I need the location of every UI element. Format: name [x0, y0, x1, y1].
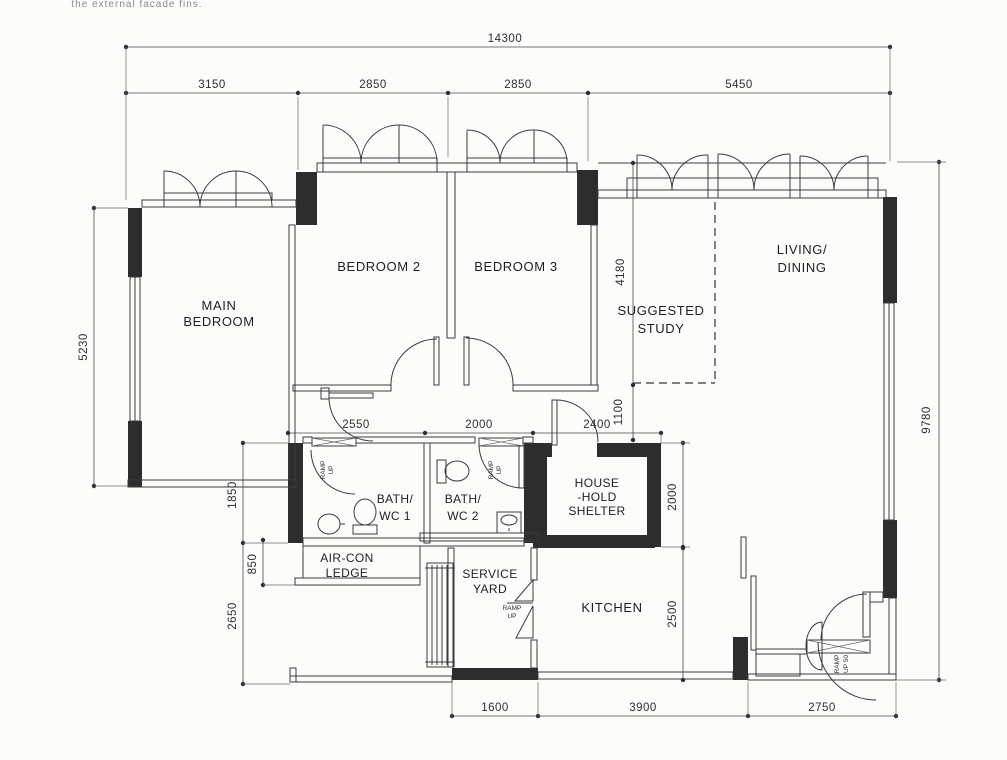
- dim-kitchen-depth: 2500: [667, 600, 679, 628]
- label-service-yard-2: YARD: [473, 582, 507, 596]
- ramp-bath1-1: RAMP: [320, 461, 327, 480]
- ramp-entrance-2: UP 50: [843, 655, 850, 673]
- dim-bottom-seg-1: 1600: [481, 702, 509, 714]
- dim-top-seg-1: 3150: [198, 79, 226, 91]
- label-bedroom3: BEDROOM 3: [474, 259, 557, 274]
- floor-plan-page: the external facade fins.: [0, 0, 1007, 760]
- window-arcs: [164, 125, 868, 207]
- label-living-2: DINING: [777, 260, 826, 275]
- dim-right-height: 9780: [921, 406, 933, 434]
- label-main-bedroom-2: BEDROOM: [183, 314, 254, 329]
- label-study-1: SUGGESTED: [617, 303, 704, 318]
- label-shelter-1: HOUSE: [575, 476, 620, 490]
- label-study-2: STUDY: [637, 321, 684, 336]
- ramp-bath2-2: UP: [496, 465, 503, 474]
- dim-top-seg-2: 2850: [359, 79, 387, 91]
- dim-bath-depth: 1850: [227, 481, 239, 509]
- dim-lower-left-depth: 2650: [227, 602, 239, 630]
- dim-study-gap: 1100: [613, 399, 625, 426]
- label-bath1-2: WC 1: [379, 509, 411, 523]
- ramp-service-yard-2: UP: [507, 613, 516, 620]
- label-bath2-2: WC 2: [447, 509, 479, 523]
- aircon-grille: [425, 563, 455, 667]
- dim-top-seg-3: 2850: [504, 79, 532, 91]
- note-text: the external facade fins.: [71, 0, 202, 10]
- dim-shelter-width: 2400: [583, 419, 611, 431]
- label-ledge-2: LEDGE: [326, 566, 369, 580]
- dim-ledge-depth: 850: [247, 554, 259, 575]
- dim-overall-width: 14300: [488, 33, 522, 45]
- label-shelter-3: SHELTER: [568, 504, 625, 518]
- label-kitchen: KITCHEN: [581, 600, 642, 615]
- dimension-lines: [92, 45, 946, 718]
- label-service-yard-1: SERVICE: [462, 567, 517, 581]
- dim-top-seg-4: 5450: [725, 79, 753, 91]
- suggested-study-outline: [633, 202, 715, 383]
- dim-bath1-width: 2550: [342, 419, 370, 431]
- dim-bath2-width: 2000: [465, 419, 493, 431]
- room-labels: MAIN BEDROOM BEDROOM 2 BEDROOM 3 SUGGEST…: [183, 242, 827, 615]
- ramp-entrance-1: RAMP: [834, 655, 841, 674]
- label-bath1-1: BATH/: [377, 492, 414, 506]
- label-main-bedroom-1: MAIN: [202, 298, 237, 313]
- dim-study-depth: 4180: [615, 258, 627, 286]
- floor-plan-drawing: the external facade fins.: [0, 0, 1007, 760]
- label-bedroom2: BEDROOM 2: [337, 259, 420, 274]
- dim-bottom-seg-2: 3900: [629, 702, 657, 714]
- ramp-bath1-2: UP: [328, 465, 335, 474]
- ramp-bath2-1: RAMP: [488, 461, 495, 480]
- label-living-1: LIVING/: [777, 242, 827, 257]
- dim-left-height: 5230: [78, 333, 90, 361]
- dim-bottom-seg-3: 2750: [808, 702, 836, 714]
- label-shelter-2: -HOLD: [577, 490, 616, 504]
- ramp-service-yard-1: RAMP: [503, 605, 522, 612]
- label-bath2-1: BATH/: [445, 492, 482, 506]
- dim-shelter-depth: 2000: [667, 483, 679, 511]
- label-ledge-1: AIR-CON: [320, 551, 373, 565]
